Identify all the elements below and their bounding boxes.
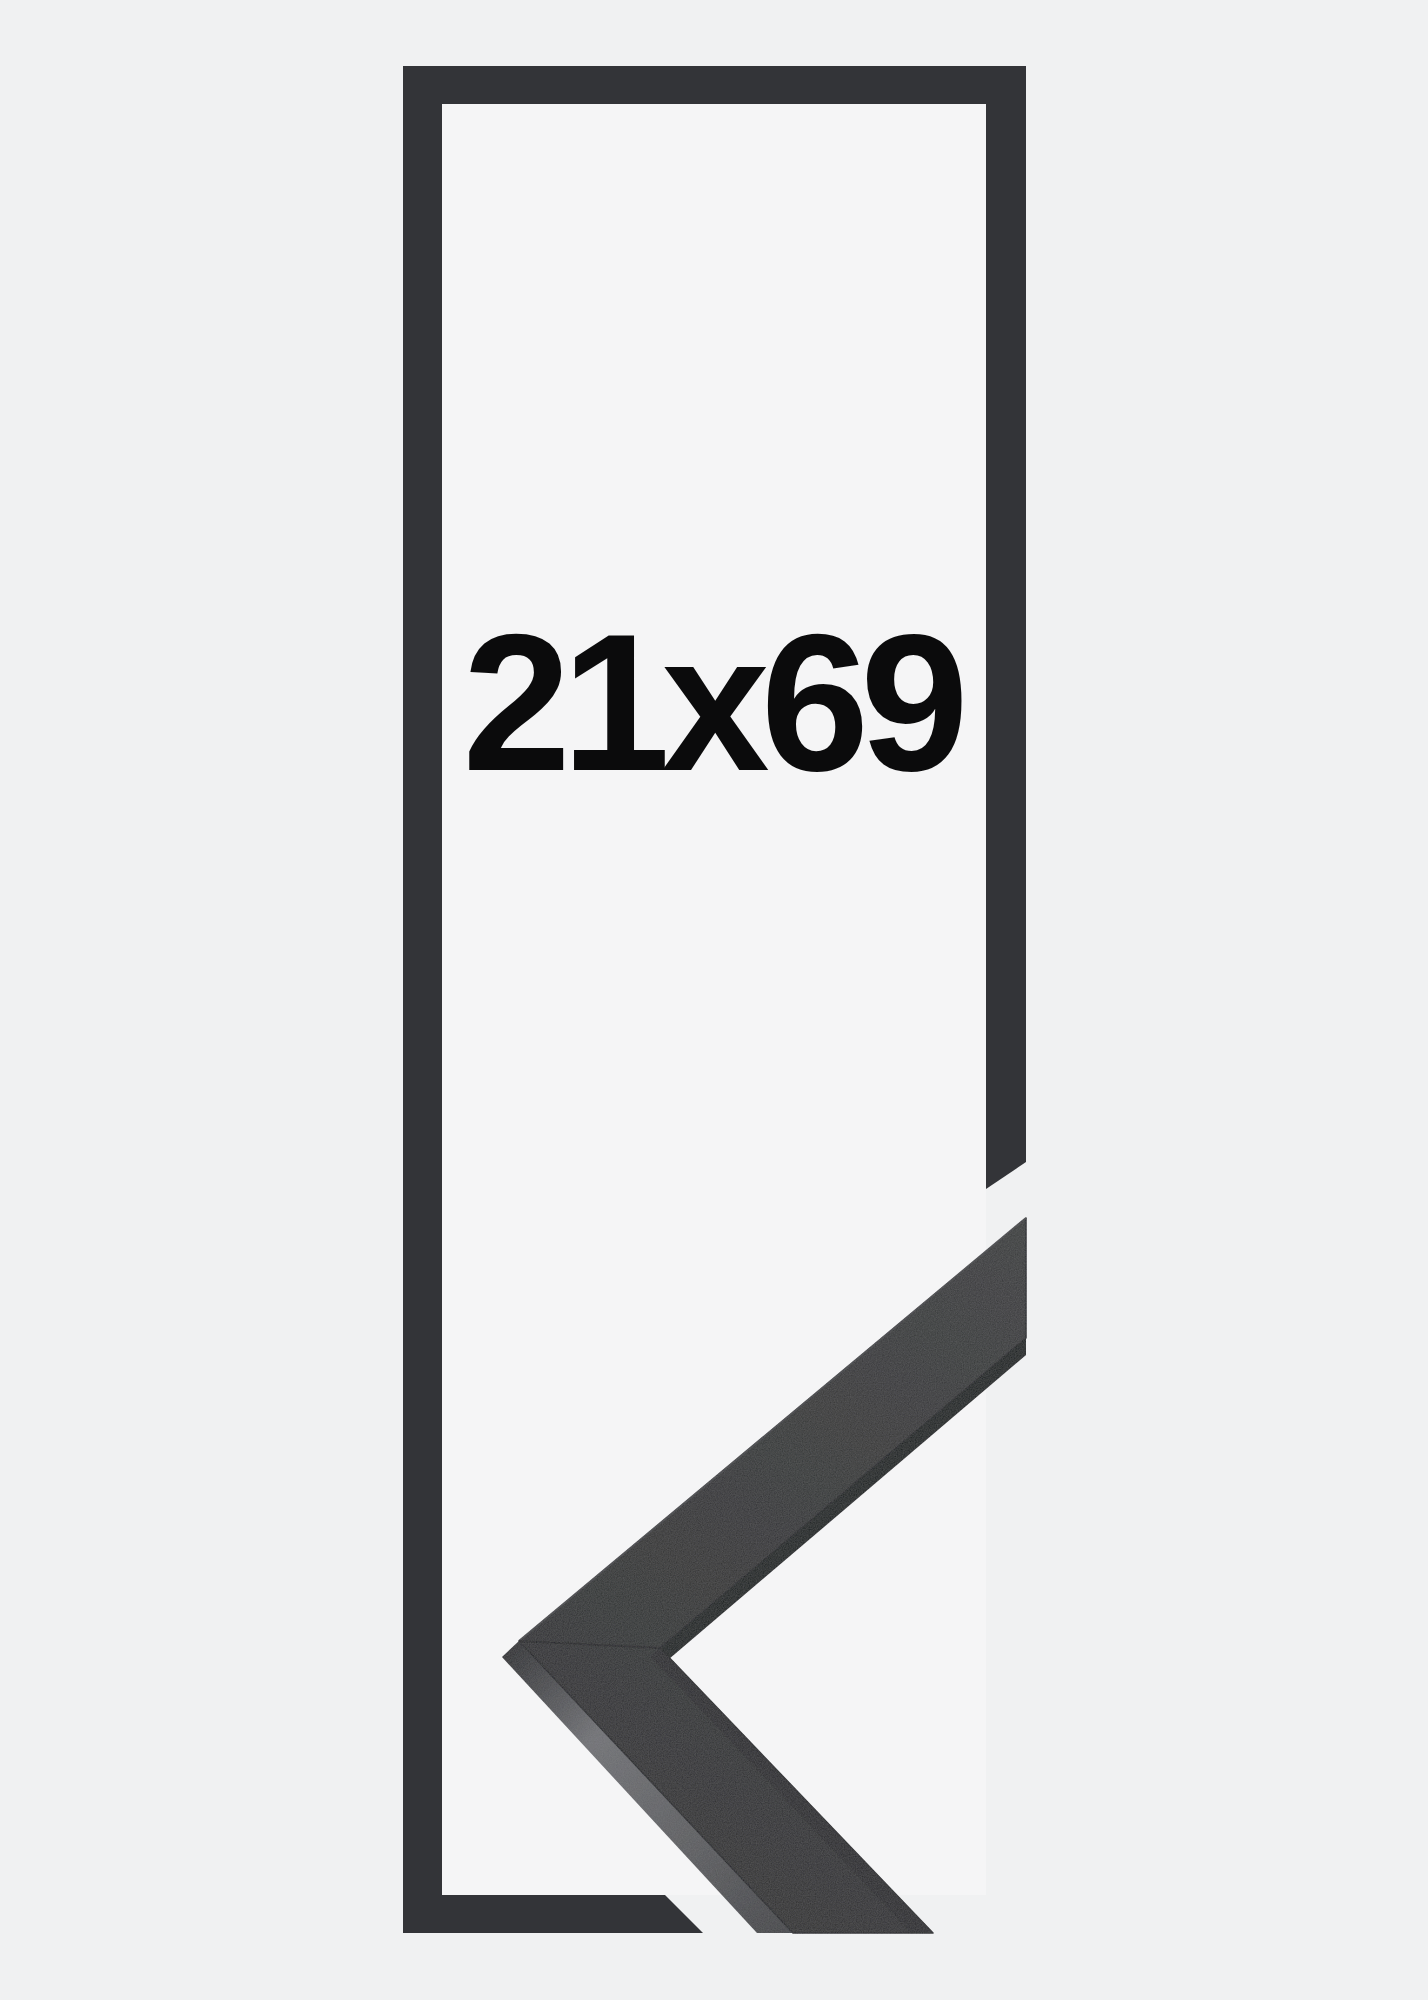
frame-outline-right-bar — [986, 104, 1026, 1189]
frame-outline-left-bar — [403, 66, 442, 1933]
size-label: 21x69 — [462, 593, 962, 811]
product-image[interactable]: 21x69 — [0, 0, 1428, 2000]
frame-size-illustration: 21x69 — [0, 0, 1428, 2000]
frame-inner-area — [442, 104, 986, 1895]
frame-outline-bottom-bar — [403, 1895, 703, 1933]
frame-outline-top-bar — [403, 66, 1026, 104]
